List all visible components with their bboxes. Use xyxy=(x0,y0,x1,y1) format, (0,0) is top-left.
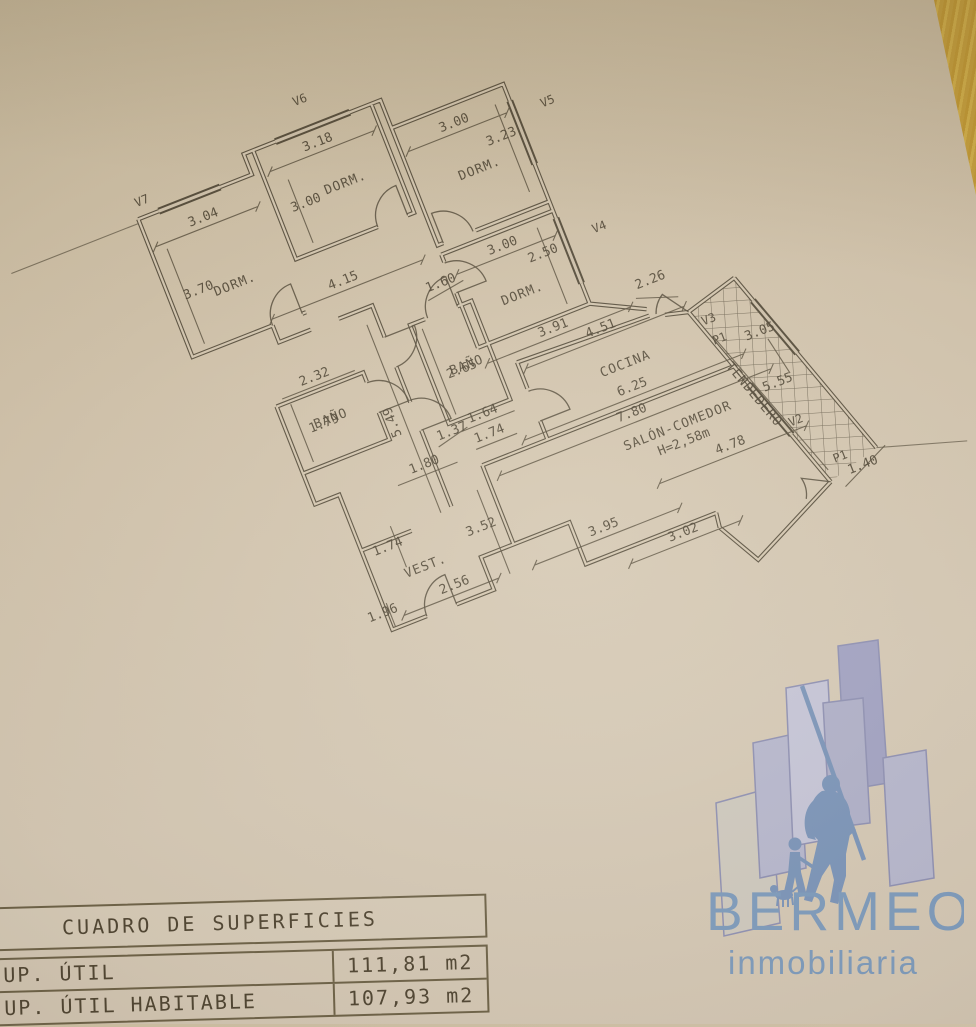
room-label-dorm-4: DORM. xyxy=(499,279,546,309)
dim-3-95: 3.95 xyxy=(586,515,621,540)
room-label-dorm-2: DORM. xyxy=(322,168,369,198)
room-label-dorm-3: DORM. xyxy=(456,154,503,184)
dim-3-02: 3.02 xyxy=(666,520,701,545)
dim-3-18: 3.18 xyxy=(300,130,335,155)
floor-plan-photo: V7 V6 V5 V4 V3 V2 P1 P1 DORM. DORM. DORM… xyxy=(0,0,976,1024)
dim-6-25: 6.25 xyxy=(615,375,650,400)
window-label-v6: V6 xyxy=(290,91,309,109)
surfaces-table: CUADRO DE SUPERFICIES UP. ÚTIL 111,81 m2… xyxy=(0,894,490,1027)
window-label-v4: V4 xyxy=(590,218,609,236)
dim-1-74-b: 1.74 xyxy=(371,534,406,559)
window-label-v7: V7 xyxy=(132,192,151,210)
dim-2-65: 2.65 xyxy=(445,357,480,382)
dim-3-00-b: 3.00 xyxy=(437,111,472,136)
dim-3-52: 3.52 xyxy=(464,515,499,540)
room-label-vest: VEST. xyxy=(402,552,449,582)
dim-1-96: 1.96 xyxy=(366,601,401,626)
dim-5-49: 5.49 xyxy=(380,405,405,440)
dim-2-26: 2.26 xyxy=(633,268,668,293)
dim-3-70: 3.70 xyxy=(181,278,216,303)
row-value-sup-util: 111,81 m2 xyxy=(332,947,487,982)
dim-4-78: 4.78 xyxy=(713,433,748,458)
row-value-sup-util-habitable: 107,93 m2 xyxy=(333,980,488,1015)
dim-1-60: 1.60 xyxy=(424,271,459,296)
dim-3-04: 3.04 xyxy=(186,205,221,230)
dim-1-79: 1.79 xyxy=(307,411,342,436)
dim-3-23: 3.23 xyxy=(484,124,519,149)
dim-4-15: 4.15 xyxy=(326,268,361,293)
room-label-dorm-1: DORM. xyxy=(212,270,259,300)
dim-4-51: 4.51 xyxy=(583,316,618,341)
logo-subtitle-text: inmobiliaria xyxy=(728,944,919,981)
window-label-v5: V5 xyxy=(538,92,557,110)
logo-brand-text: BERMEO xyxy=(706,880,964,942)
dim-7-80: 7.80 xyxy=(614,401,649,426)
bermeo-logo: BERMEO inmobiliaria xyxy=(698,628,964,1024)
